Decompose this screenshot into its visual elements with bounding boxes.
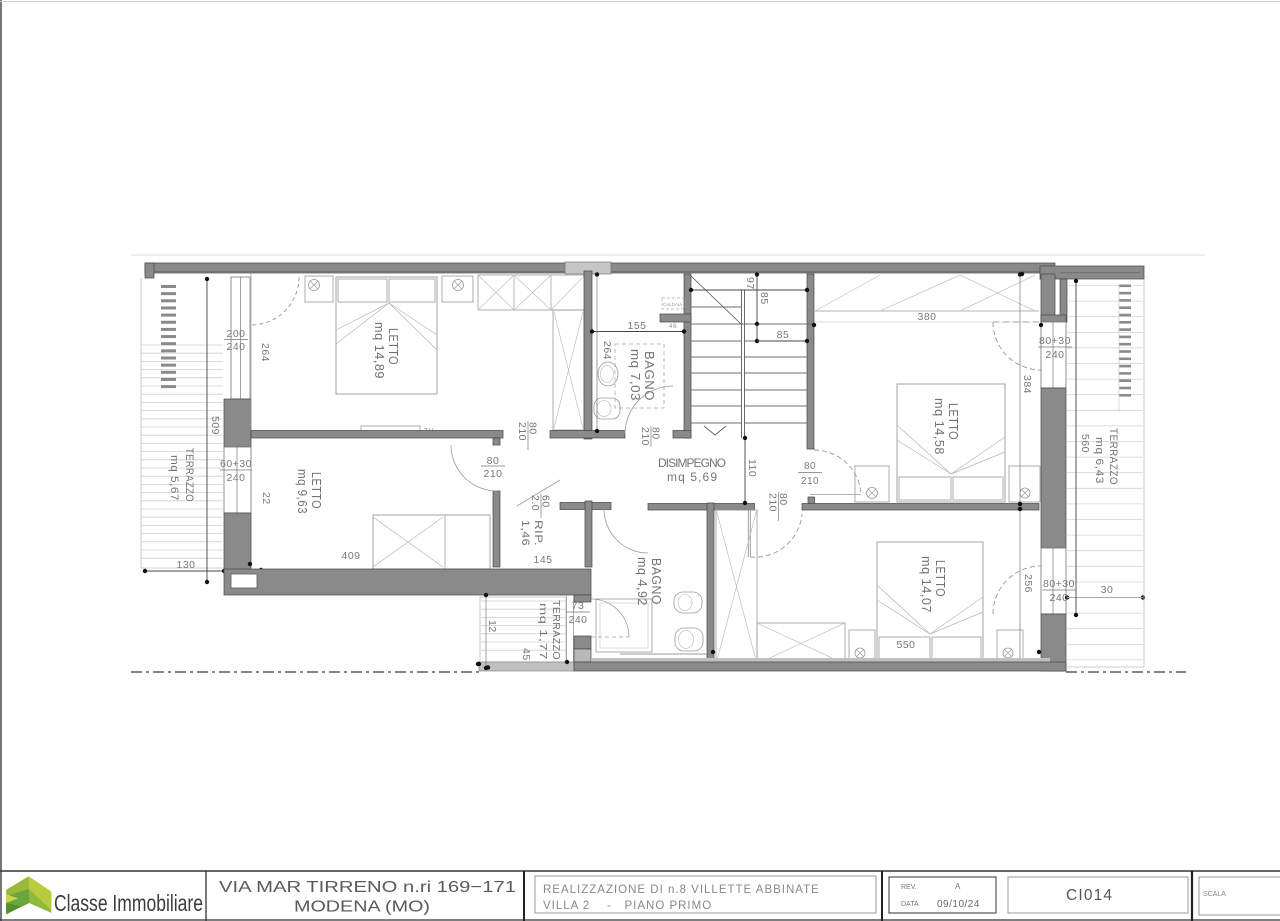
svg-text:CI014: CI014: [1066, 887, 1112, 904]
svg-text:80+30: 80+30: [1039, 335, 1071, 347]
svg-text:VILLA 2 - PIANO PRIMO: VILLA 2 - PIANO PRIMO: [543, 900, 712, 912]
svg-text:46: 46: [669, 323, 677, 330]
svg-text:mq 6,43: mq 6,43: [1093, 437, 1105, 484]
svg-text:BAGNO: BAGNO: [642, 351, 656, 401]
svg-text:TERRAZZO: TERRAZZO: [183, 448, 195, 502]
svg-text:09/10/24: 09/10/24: [937, 899, 980, 910]
svg-text:mq 14,58: mq 14,58: [932, 398, 946, 455]
svg-text:TERRAZZO: TERRAZZO: [1107, 428, 1119, 485]
svg-text:SCALA: SCALA: [1203, 891, 1226, 898]
svg-text:BAGNO: BAGNO: [649, 558, 663, 605]
svg-text:LETTO: LETTO: [946, 403, 960, 440]
svg-text:12: 12: [486, 620, 498, 633]
svg-text:mq 5,69: mq 5,69: [667, 470, 717, 484]
svg-text:210: 210: [767, 493, 779, 512]
svg-text:85: 85: [777, 329, 790, 341]
svg-text:210: 210: [483, 468, 502, 480]
svg-text:DATA: DATA: [901, 901, 919, 908]
svg-text:200: 200: [226, 328, 245, 340]
svg-text:110: 110: [746, 459, 758, 477]
svg-text:80+30: 80+30: [1043, 578, 1075, 590]
svg-text:mq 1,77: mq 1,77: [537, 603, 549, 660]
svg-text:REALIZZAZIONE DI n.8 VILLETTE: REALIZZAZIONE DI n.8 VILLETTE ABBINATE: [543, 884, 820, 896]
svg-text:A: A: [955, 882, 961, 891]
svg-text:384: 384: [1021, 375, 1033, 394]
svg-text:80: 80: [804, 461, 816, 472]
svg-text:240: 240: [568, 614, 587, 626]
svg-text:240: 240: [1049, 592, 1068, 604]
svg-text:210: 210: [801, 476, 819, 487]
svg-text:mq 5,67: mq 5,67: [168, 455, 180, 501]
svg-text:264: 264: [259, 343, 271, 362]
svg-text:130: 130: [176, 559, 195, 571]
svg-text:240: 240: [226, 472, 245, 484]
svg-text:CALDAIA: CALDAIA: [663, 302, 682, 307]
svg-text:22: 22: [260, 492, 272, 505]
svg-text:240: 240: [1045, 349, 1064, 361]
svg-text:380: 380: [917, 311, 936, 323]
svg-text:210: 210: [516, 422, 528, 441]
svg-text:LETTO: LETTO: [309, 472, 323, 509]
svg-text:30: 30: [1101, 584, 1114, 596]
svg-text:1,46: 1,46: [519, 520, 531, 546]
svg-text:550: 550: [896, 639, 915, 651]
svg-text:256: 256: [1022, 574, 1034, 593]
svg-text:97: 97: [744, 277, 756, 290]
svg-text:264: 264: [601, 341, 613, 360]
svg-text:2.0: 2.0: [529, 495, 541, 511]
svg-text:VIA MAR TIRRENO n.ri 169−171: VIA MAR TIRRENO n.ri 169−171: [219, 879, 516, 896]
svg-text:Classe Immobiliare: Classe Immobiliare: [54, 890, 203, 916]
svg-text:mq 14,89: mq 14,89: [372, 322, 386, 379]
svg-text:60+30: 60+30: [220, 458, 252, 470]
svg-text:73: 73: [572, 600, 585, 612]
svg-text:45: 45: [520, 648, 532, 661]
svg-text:REV.: REV.: [901, 884, 917, 891]
svg-text:85: 85: [758, 292, 770, 305]
svg-text:RIP.: RIP.: [532, 520, 544, 546]
svg-text:DISIMPEGNO: DISIMPEGNO: [658, 456, 726, 470]
svg-text:509: 509: [209, 416, 221, 435]
svg-text:mq 14,07: mq 14,07: [919, 556, 933, 613]
svg-text:210: 210: [639, 427, 651, 446]
svg-text:TERRAZZO: TERRAZZO: [550, 600, 562, 660]
svg-text:LETTO: LETTO: [386, 328, 400, 365]
svg-text:LETTO: LETTO: [933, 560, 947, 597]
svg-text:mq 9,63: mq 9,63: [295, 469, 309, 514]
svg-text:mq 7,03: mq 7,03: [628, 349, 642, 401]
svg-text:80: 80: [487, 455, 500, 467]
svg-text:155: 155: [627, 320, 646, 332]
svg-text:mq 4,92: mq 4,92: [635, 557, 649, 606]
svg-text:560: 560: [1079, 434, 1091, 453]
svg-text:240: 240: [226, 341, 245, 353]
svg-text:145: 145: [533, 554, 552, 566]
svg-text:MODENA (MO): MODENA (MO): [294, 899, 430, 916]
svg-text:409: 409: [341, 550, 360, 562]
